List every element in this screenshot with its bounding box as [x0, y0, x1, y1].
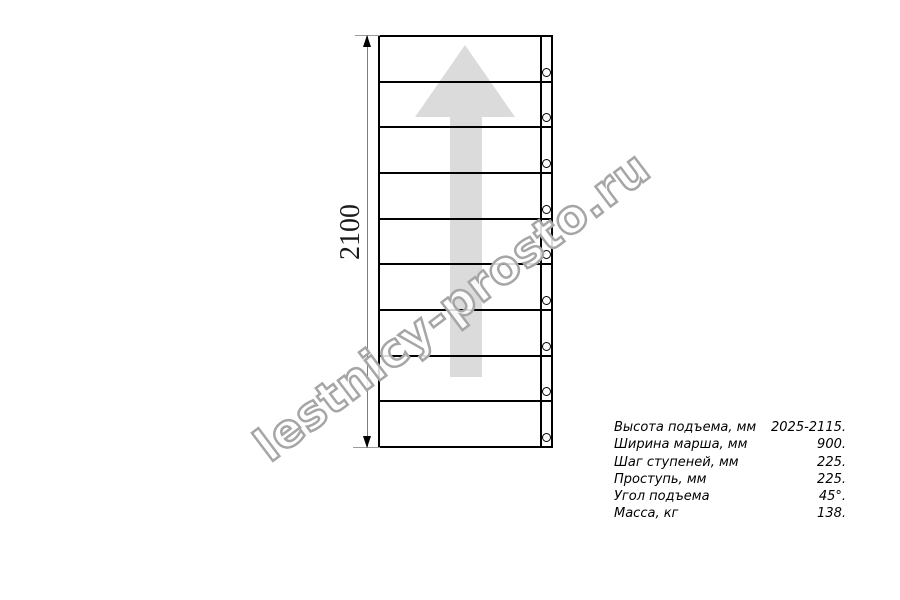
- dimension-arrowhead-up-icon: [363, 35, 371, 47]
- tread-row: [380, 402, 551, 446]
- bolt-hole-icon: [542, 68, 551, 77]
- tread-row: [380, 128, 551, 174]
- spec-value: 2025-2115.: [771, 419, 846, 436]
- spec-row: Высота подъема, мм 2025-2115.: [614, 419, 846, 436]
- spec-label: Ширина марша, мм: [614, 436, 747, 453]
- spec-label: Масса, кг: [614, 505, 678, 522]
- bolt-hole-icon: [542, 387, 551, 396]
- specs-table: Высота подъема, мм 2025-2115. Ширина мар…: [614, 419, 846, 523]
- spec-value: 225.: [817, 471, 846, 488]
- drawing-canvas: 2100 Высота подъема, мм 2025-2115. Ширин…: [0, 0, 900, 600]
- dimension-arrowhead-down-icon: [363, 436, 371, 448]
- spec-row: Шаг ступеней, мм 225.: [614, 454, 846, 471]
- tread-row: [380, 37, 551, 83]
- spec-label: Угол подъема: [614, 488, 710, 505]
- bolt-hole-icon: [542, 342, 551, 351]
- spec-row: Угол подъема 45°.: [614, 488, 846, 505]
- spec-row: Масса, кг 138.: [614, 505, 846, 522]
- spec-row: Проступь, мм 225.: [614, 471, 846, 488]
- bolt-hole-icon: [542, 433, 551, 442]
- spec-row: Ширина марша, мм 900.: [614, 436, 846, 453]
- bolt-hole-icon: [542, 159, 551, 168]
- spec-value: 900.: [817, 436, 846, 453]
- spec-label: Проступь, мм: [614, 471, 706, 488]
- bolt-hole-icon: [542, 113, 551, 122]
- tread-row: [380, 83, 551, 129]
- spec-value: 225.: [817, 454, 846, 471]
- dimension-label: 2100: [335, 204, 367, 260]
- bolt-hole-icon: [542, 296, 551, 305]
- tread-row: [380, 174, 551, 220]
- spec-label: Высота подъема, мм: [614, 419, 756, 436]
- spec-value: 45°.: [819, 488, 846, 505]
- spec-value: 138.: [817, 505, 846, 522]
- spec-label: Шаг ступеней, мм: [614, 454, 739, 471]
